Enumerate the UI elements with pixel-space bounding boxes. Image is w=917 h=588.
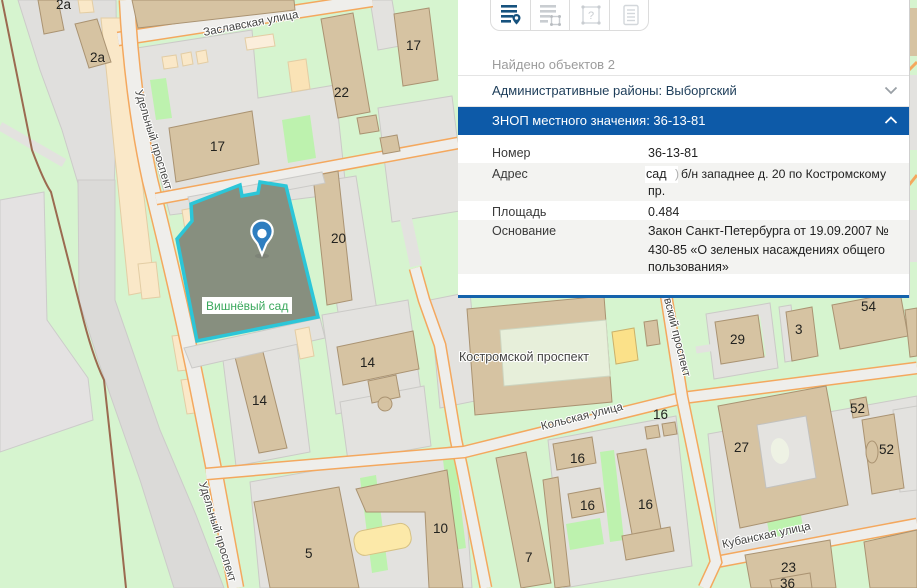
svg-text:?: ? xyxy=(588,10,594,22)
svg-text:2а: 2а xyxy=(56,0,72,12)
svg-text:2а: 2а xyxy=(90,50,106,65)
svg-text:16: 16 xyxy=(638,497,653,512)
svg-text:52: 52 xyxy=(879,442,894,457)
svg-text:23: 23 xyxy=(781,560,796,575)
svg-text:27: 27 xyxy=(734,440,749,455)
svg-text:10: 10 xyxy=(433,521,448,536)
svg-text:16: 16 xyxy=(580,498,595,513)
svg-text:5: 5 xyxy=(305,546,313,561)
svg-text:16: 16 xyxy=(653,407,668,422)
svg-text:3: 3 xyxy=(795,322,803,337)
svg-text:16: 16 xyxy=(570,451,585,466)
svg-text:52: 52 xyxy=(850,401,865,416)
svg-text:36: 36 xyxy=(780,576,795,588)
svg-text:14: 14 xyxy=(252,393,268,408)
svg-text:22: 22 xyxy=(334,85,349,100)
svg-text:54: 54 xyxy=(861,299,877,314)
svg-text:17: 17 xyxy=(406,38,421,53)
svg-text:Костромской проспект: Костромской проспект xyxy=(459,350,589,364)
svg-text:29: 29 xyxy=(730,332,745,347)
svg-text:Вишнёвый сад: Вишнёвый сад xyxy=(206,299,288,313)
svg-text:14: 14 xyxy=(360,355,376,370)
svg-text:17: 17 xyxy=(210,139,225,154)
svg-text:7: 7 xyxy=(525,550,533,565)
svg-text:20: 20 xyxy=(331,231,346,246)
